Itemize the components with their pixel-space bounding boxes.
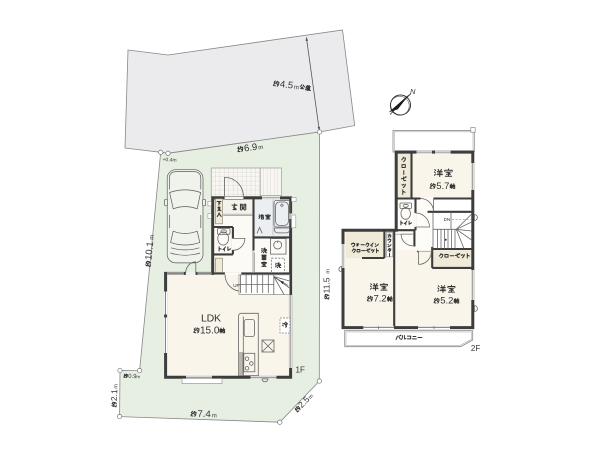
- svg-text:DN: DN: [444, 217, 451, 222]
- svg-text:7.2: 7.2: [374, 294, 387, 305]
- svg-text:m: m: [258, 145, 264, 152]
- svg-text:2F: 2F: [471, 344, 480, 353]
- svg-text:1F: 1F: [296, 366, 305, 375]
- svg-text:+0.4m: +0.4m: [162, 157, 176, 164]
- svg-text:m: m: [212, 413, 217, 419]
- svg-text:LDK: LDK: [201, 313, 221, 325]
- svg-text:5.2: 5.2: [440, 296, 453, 307]
- svg-text:UP: UP: [233, 283, 239, 288]
- svg-text:m: m: [325, 269, 331, 274]
- svg-text:7.4: 7.4: [197, 409, 211, 420]
- svg-text:2.1: 2.1: [109, 389, 119, 401]
- svg-text:m: m: [294, 85, 300, 92]
- svg-text:4.5: 4.5: [279, 79, 293, 92]
- svg-text:15.0: 15.0: [200, 325, 220, 336]
- svg-text:m: m: [136, 374, 140, 379]
- svg-text:m: m: [113, 384, 119, 389]
- svg-text:5.7: 5.7: [436, 181, 449, 192]
- svg-text:10.1: 10.1: [143, 241, 156, 261]
- svg-text:N: N: [410, 87, 416, 96]
- svg-text:m: m: [149, 234, 155, 240]
- svg-text:6.9: 6.9: [243, 142, 258, 155]
- svg-text:11.5: 11.5: [321, 277, 331, 293]
